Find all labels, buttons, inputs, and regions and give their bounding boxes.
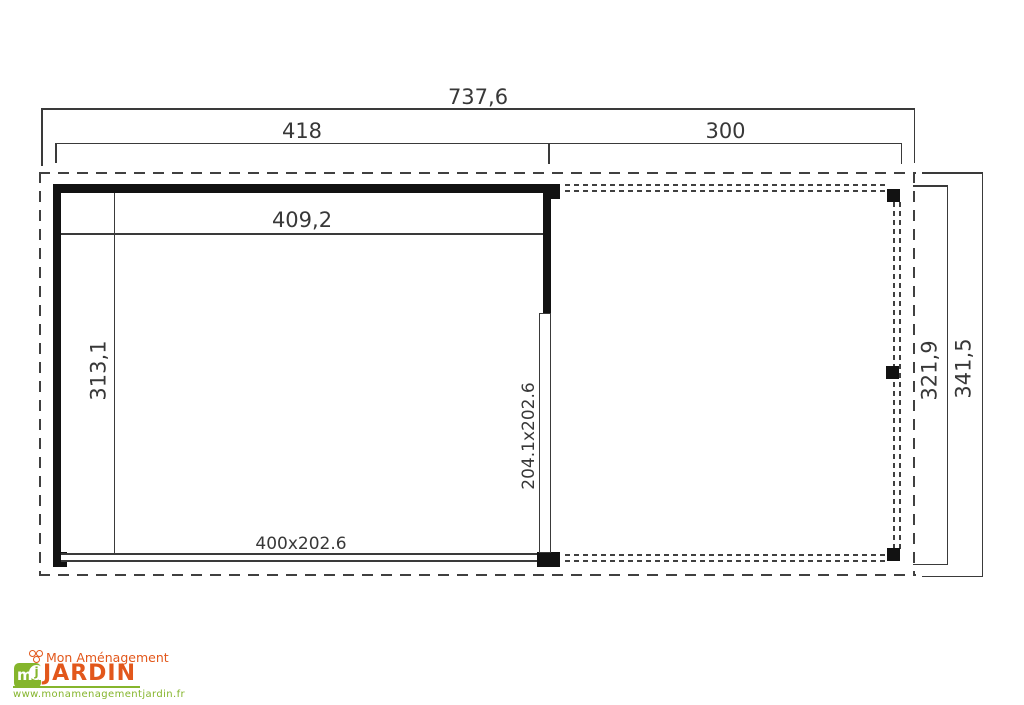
dim-cabin-width-label: 418 [55, 121, 549, 142]
dim-sub-width-line [55, 143, 902, 145]
logo-website: www.monamenagementjardin.fr [13, 689, 185, 700]
dim-inner-depth-line [114, 193, 116, 554]
canopy-edge-right-inner [899, 202, 901, 550]
dim-sub-tick-left [55, 143, 57, 163]
roof-outline-left [39, 172, 41, 576]
dim-total-width-line [41, 108, 915, 110]
dim-sub-tick-middle [548, 143, 550, 164]
dim-inner-depth-label: 313,1 [89, 331, 110, 411]
cabin-wall-left [53, 184, 61, 558]
cabin-corner-block-bottom-right [537, 552, 560, 567]
cabin-wall-right [543, 184, 551, 313]
canopy-edge-bottom-outer [565, 554, 886, 556]
dim-total-depth-label: 341,5 [954, 329, 975, 409]
dim-total-width-tick-right [914, 108, 916, 163]
dim-canopy-depth-end-top [913, 185, 948, 187]
logo-badge-circle: j [29, 665, 44, 680]
dim-total-width-tick-left [41, 108, 43, 166]
canopy-edge-bottom-inner [565, 560, 886, 562]
logo-underline [13, 686, 140, 688]
canopy-post-bottom [887, 548, 900, 561]
logo-brand: JARDIN [43, 661, 136, 686]
roof-outline-right [913, 172, 915, 576]
floor-plan-canvas: 737,6 418 300 409,2 313,1 204.1x202.6 40… [0, 0, 1024, 705]
dim-canopy-width-label: 300 [549, 121, 902, 142]
roof-outline-bottom [39, 574, 916, 576]
dim-total-depth-line [982, 172, 984, 577]
dim-inner-width-line [61, 233, 543, 235]
clover-icon [33, 656, 40, 663]
roof-outline-top [39, 172, 916, 174]
dim-canopy-depth-label: 321,9 [920, 331, 941, 411]
canopy-post-middle [886, 366, 899, 379]
side-door-size-label: 204.1x202.6 [520, 376, 538, 496]
dim-inner-width-label: 409,2 [61, 210, 543, 231]
dim-total-depth-end-top [922, 172, 983, 174]
dim-sub-tick-right [901, 143, 903, 164]
dim-total-depth-end-bottom [922, 576, 983, 578]
canopy-post-top [887, 189, 900, 202]
canopy-edge-top-inner [565, 190, 888, 192]
dim-total-width-label: 737,6 [41, 87, 915, 108]
side-door [539, 313, 551, 553]
cabin-wall-top [53, 184, 560, 193]
front-opening-size-label: 400x202.6 [239, 535, 363, 553]
dim-canopy-depth-line [947, 185, 949, 565]
dim-canopy-depth-end-bottom [913, 564, 948, 566]
canopy-edge-top-outer [565, 184, 888, 186]
